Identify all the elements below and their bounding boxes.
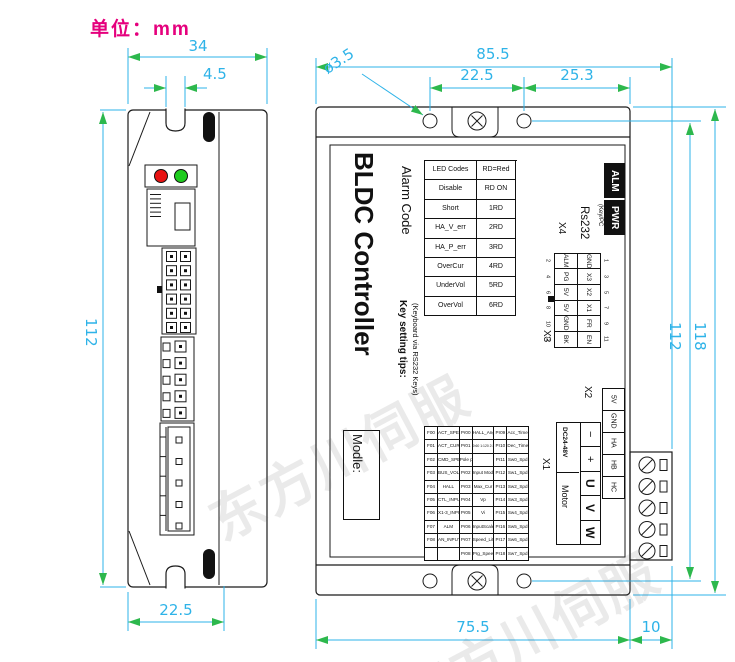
x3-even-pin-numbers: 24 68 1012 — [543, 253, 552, 347]
x1-motor-header: Motor — [560, 485, 570, 541]
dim-hole-span-left: 22.5 — [450, 66, 504, 84]
x3-pin-grid: ALMGND PGX3 5VX2 5VX1 GNDFR BKEN — [554, 253, 600, 347]
dim-side-height: 112 — [82, 318, 100, 347]
dim-side-bottom: 22.5 — [150, 601, 202, 619]
x2-pin-strip: 5V GND HA HB HC — [602, 388, 624, 498]
keytips-heading: Key setting tips: — [397, 300, 408, 558]
x2-label: X2 — [582, 386, 593, 398]
dim-hole-span-right: 25.3 — [553, 66, 601, 84]
alarm-code-table: LED CodesRD=Red DisableRD ON Short1RD HA… — [424, 160, 517, 316]
led-panel — [145, 165, 197, 187]
rj45-jack — [147, 189, 195, 246]
side-slot-top — [203, 112, 215, 142]
x1-dc-header: DC24-48V — [561, 427, 568, 469]
x4-label: X4 — [556, 222, 567, 234]
pwr-led-mark: PWR — [604, 200, 625, 235]
dim-terminal-depth: 10 — [634, 618, 668, 636]
red-led — [155, 170, 168, 183]
x3-odd-pin-numbers: 13 57 911 — [601, 253, 610, 347]
alarm-heading: Alarm Code — [399, 166, 414, 235]
side-slot-bottom — [203, 549, 215, 579]
dim-front-hole-pitch: 112 — [666, 322, 684, 351]
dim-side-width: 34 — [182, 37, 214, 55]
green-led — [175, 170, 188, 183]
product-title: BLDC Controller — [348, 152, 379, 352]
dim-front-total-width: 85.5 — [466, 45, 520, 63]
keytips-subheading: (Keyboard via RS232 Keys) — [411, 303, 420, 558]
signal-connector-5pin — [161, 337, 194, 421]
dim-side-notch: 4.5 — [203, 65, 227, 83]
rs232-label: Rs232 — [578, 206, 590, 239]
power-terminal-5pos — [160, 423, 194, 535]
rs232-sub1: (Key/PC — [597, 204, 603, 226]
pin-header-2x6 — [157, 248, 196, 334]
unit-label: 单位：mm — [90, 14, 191, 41]
technical-drawing-canvas: 东方川伺服 东方川伺服 — [0, 0, 735, 662]
parameter-table: F00ACT_SPEEDPr00HALL_AngPr09Acc_Time F01… — [424, 426, 529, 561]
x1-pin-strip: − + U V W — [580, 422, 600, 545]
dim-front-total-height: 118 — [691, 322, 709, 351]
alm-led-mark: ALM — [604, 163, 625, 198]
x1-label: X1 — [540, 458, 551, 470]
